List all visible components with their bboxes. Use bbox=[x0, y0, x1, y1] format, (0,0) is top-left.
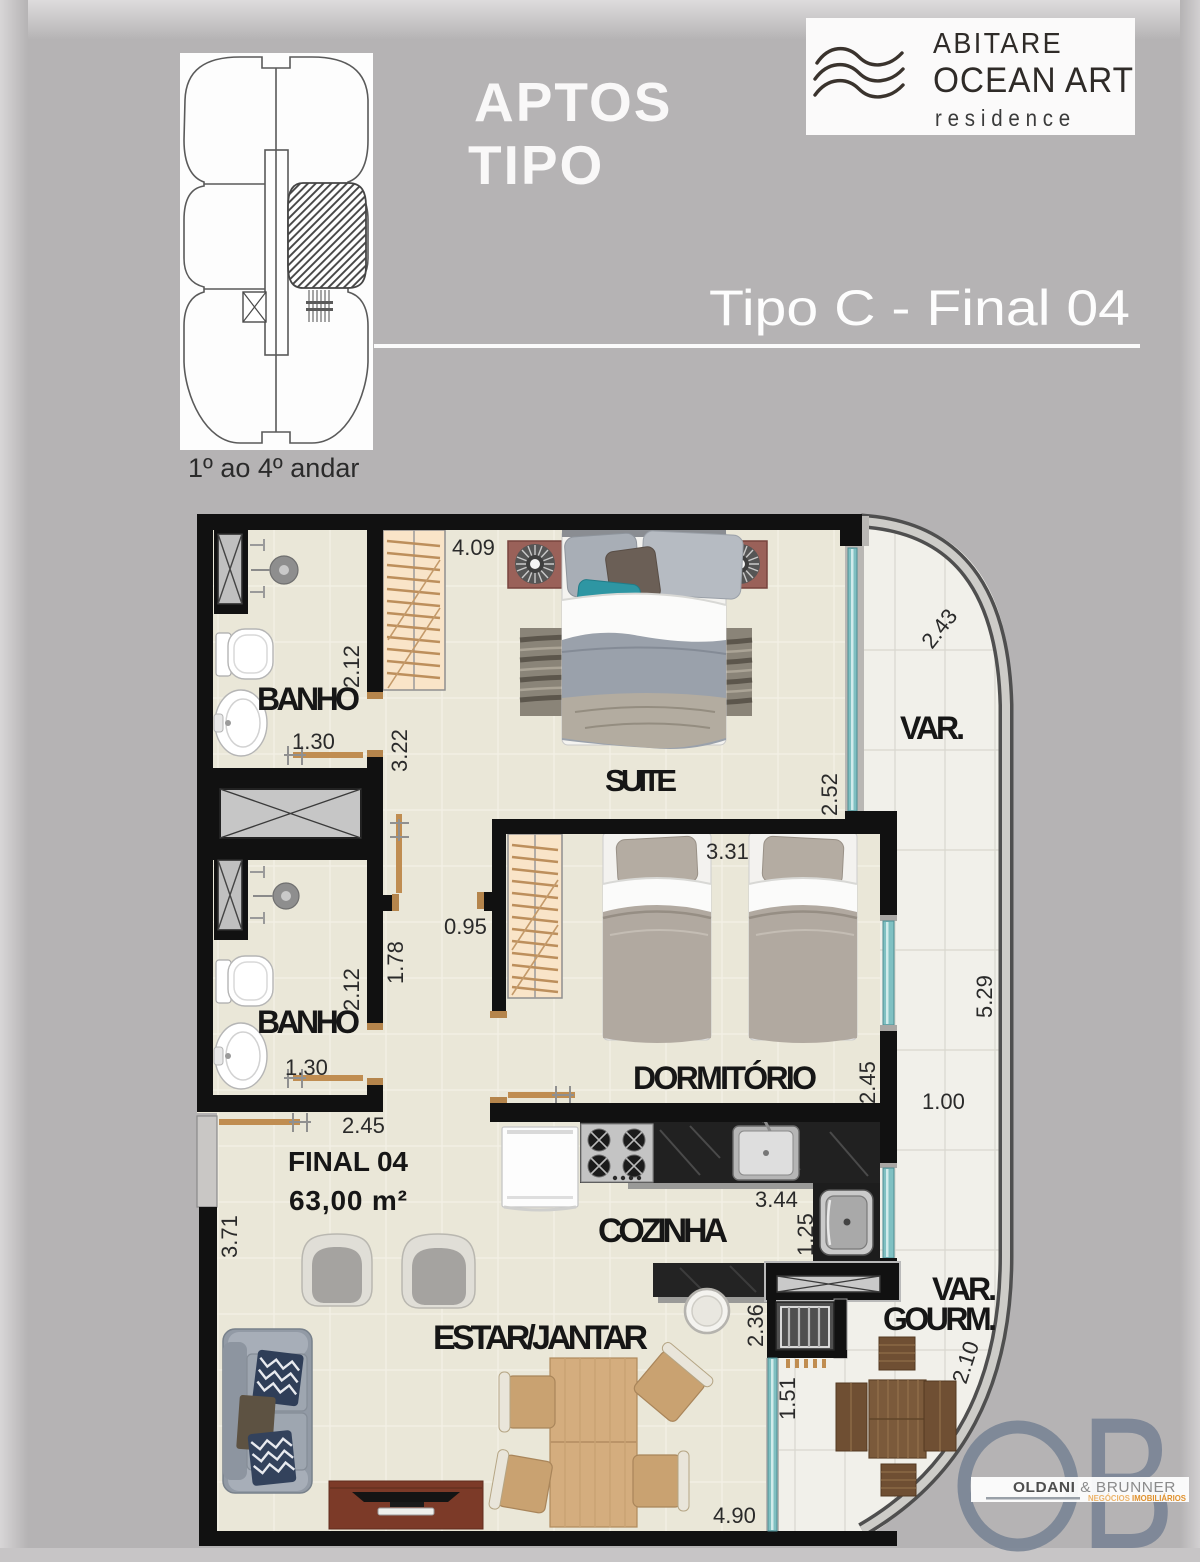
svg-text:3.71: 3.71 bbox=[217, 1215, 242, 1258]
svg-text:1º ao 4º andar: 1º ao 4º andar bbox=[188, 453, 359, 483]
svg-text:2.52: 2.52 bbox=[817, 773, 842, 816]
svg-text:Tipo C - Final 04: Tipo C - Final 04 bbox=[709, 280, 1130, 336]
svg-text:63,00 m²: 63,00 m² bbox=[289, 1185, 407, 1216]
svg-text:GOURM.: GOURM. bbox=[883, 1301, 997, 1337]
svg-text:4.09: 4.09 bbox=[452, 535, 495, 560]
svg-text:NEGÓCIOS IMOBILIÁRIOS: NEGÓCIOS IMOBILIÁRIOS bbox=[1088, 1492, 1186, 1503]
svg-text:0.95: 0.95 bbox=[444, 914, 487, 939]
svg-text:B: B bbox=[1080, 1379, 1175, 1562]
svg-text:DORMITÓRIO: DORMITÓRIO bbox=[633, 1060, 817, 1096]
svg-text:TIPO: TIPO bbox=[468, 134, 604, 196]
svg-text:ABITARE: ABITARE bbox=[933, 28, 1063, 60]
svg-text:FINAL 04: FINAL 04 bbox=[288, 1146, 408, 1177]
svg-text:4.90: 4.90 bbox=[713, 1503, 756, 1528]
svg-text:3.31: 3.31 bbox=[706, 839, 749, 864]
svg-text:2.45: 2.45 bbox=[855, 1061, 880, 1104]
svg-text:COZINHA: COZINHA bbox=[598, 1212, 728, 1250]
svg-text:residence: residence bbox=[935, 105, 1076, 131]
svg-text:5.29: 5.29 bbox=[972, 975, 997, 1018]
svg-text:3.22: 3.22 bbox=[387, 729, 412, 772]
svg-text:2.12: 2.12 bbox=[339, 645, 364, 688]
svg-text:OCEAN ART: OCEAN ART bbox=[933, 61, 1134, 100]
svg-text:APTOS: APTOS bbox=[474, 71, 672, 133]
svg-text:2.45: 2.45 bbox=[342, 1113, 385, 1138]
svg-text:1.30: 1.30 bbox=[292, 729, 335, 754]
svg-text:ESTAR/JANTAR: ESTAR/JANTAR bbox=[433, 1319, 648, 1357]
svg-text:1.78: 1.78 bbox=[383, 941, 408, 984]
svg-text:SUITE: SUITE bbox=[605, 763, 677, 798]
svg-text:1.30: 1.30 bbox=[285, 1055, 328, 1080]
svg-text:3.44: 3.44 bbox=[755, 1187, 798, 1212]
svg-text:2.12: 2.12 bbox=[339, 968, 364, 1011]
svg-text:VAR.: VAR. bbox=[900, 710, 965, 746]
svg-text:1.25: 1.25 bbox=[793, 1213, 818, 1256]
svg-text:1.51: 1.51 bbox=[775, 1377, 800, 1420]
svg-text:2.36: 2.36 bbox=[743, 1304, 768, 1347]
svg-text:1.00: 1.00 bbox=[922, 1089, 965, 1114]
